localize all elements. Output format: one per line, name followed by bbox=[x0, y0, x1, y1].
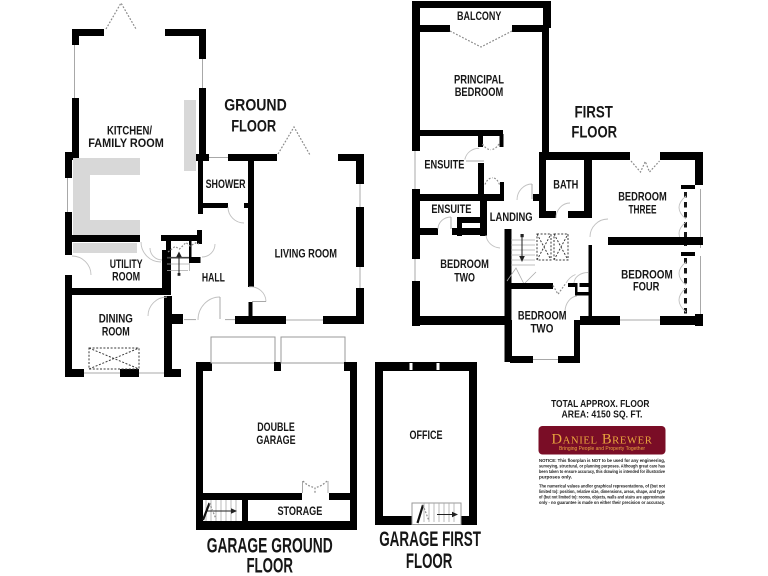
svg-text:GARAGE: GARAGE bbox=[256, 435, 295, 447]
svg-text:FAMILY ROOM: FAMILY ROOM bbox=[88, 138, 164, 150]
svg-text:KITCHEN/: KITCHEN/ bbox=[107, 125, 153, 137]
svg-text:FOUR: FOUR bbox=[633, 281, 660, 293]
svg-text:THREE: THREE bbox=[629, 205, 657, 217]
svg-text:ENSUITE: ENSUITE bbox=[431, 204, 471, 216]
svg-text:DINING: DINING bbox=[99, 314, 133, 326]
svg-text:TWO: TWO bbox=[454, 273, 475, 285]
svg-text:The numerical values and/or gr: The numerical values and/or graphical re… bbox=[539, 484, 665, 489]
svg-text:been taken to ensure accuracy,: been taken to ensure accuracy, this draw… bbox=[539, 469, 665, 474]
svg-text:limited to): position, relativ: limited to): position, relative size, di… bbox=[539, 489, 665, 494]
svg-text:ROOM: ROOM bbox=[112, 271, 140, 283]
svg-text:LANDING: LANDING bbox=[490, 212, 533, 224]
svg-text:PRINCIPAL: PRINCIPAL bbox=[454, 74, 504, 86]
svg-text:OFFICE: OFFICE bbox=[410, 430, 443, 442]
svg-text:FIRST: FIRST bbox=[574, 103, 613, 122]
svg-text:BEDROOM: BEDROOM bbox=[455, 87, 504, 99]
svg-text:LIVING ROOM: LIVING ROOM bbox=[275, 248, 337, 260]
svg-text:BEDROOM: BEDROOM bbox=[621, 270, 673, 282]
svg-text:TWO: TWO bbox=[530, 324, 553, 336]
svg-text:FLOOR: FLOOR bbox=[571, 122, 617, 141]
svg-text:BATH: BATH bbox=[553, 180, 578, 192]
svg-text:surveying, structural, or plan: surveying, structural, or planning purpo… bbox=[539, 464, 665, 469]
svg-text:GARAGE FIRST: GARAGE FIRST bbox=[379, 528, 481, 551]
svg-text:UTILITY: UTILITY bbox=[110, 259, 143, 271]
svg-text:BEDROOM: BEDROOM bbox=[518, 310, 567, 322]
svg-text:ROOM: ROOM bbox=[102, 326, 130, 338]
svg-text:HALL: HALL bbox=[202, 273, 225, 285]
svg-text:only - no guarantee is made on: only - no guarantee is made on either th… bbox=[539, 500, 665, 505]
svg-text:BEDROOM: BEDROOM bbox=[618, 192, 667, 204]
svg-text:GROUND: GROUND bbox=[224, 96, 287, 115]
svg-text:ENSUITE: ENSUITE bbox=[424, 160, 464, 172]
svg-text:BALCONY: BALCONY bbox=[457, 11, 502, 23]
svg-text:of (but not limited to): rooms: of (but not limited to): rooms, objects,… bbox=[539, 495, 665, 500]
svg-text:DOUBLE: DOUBLE bbox=[257, 422, 295, 434]
svg-text:purposes only.: purposes only. bbox=[539, 475, 572, 480]
svg-text:NOTICE: This floorplan is NOT: NOTICE: This floorplan is NOT to be used… bbox=[539, 458, 665, 463]
svg-text:FLOOR: FLOOR bbox=[246, 554, 293, 576]
svg-text:TOTAL APPROX. FLOOR: TOTAL APPROX. FLOOR bbox=[551, 399, 650, 410]
svg-text:FLOOR: FLOOR bbox=[406, 550, 453, 573]
svg-text:FLOOR: FLOOR bbox=[231, 117, 276, 136]
svg-text:SHOWER: SHOWER bbox=[206, 179, 247, 191]
svg-text:Bringing People and Property T: Bringing People and Property Together bbox=[559, 446, 645, 452]
svg-text:BEDROOM: BEDROOM bbox=[440, 259, 489, 271]
svg-text:STORAGE: STORAGE bbox=[277, 506, 322, 518]
svg-text:AREA: 4150 SQ. FT.: AREA: 4150 SQ. FT. bbox=[562, 410, 643, 421]
